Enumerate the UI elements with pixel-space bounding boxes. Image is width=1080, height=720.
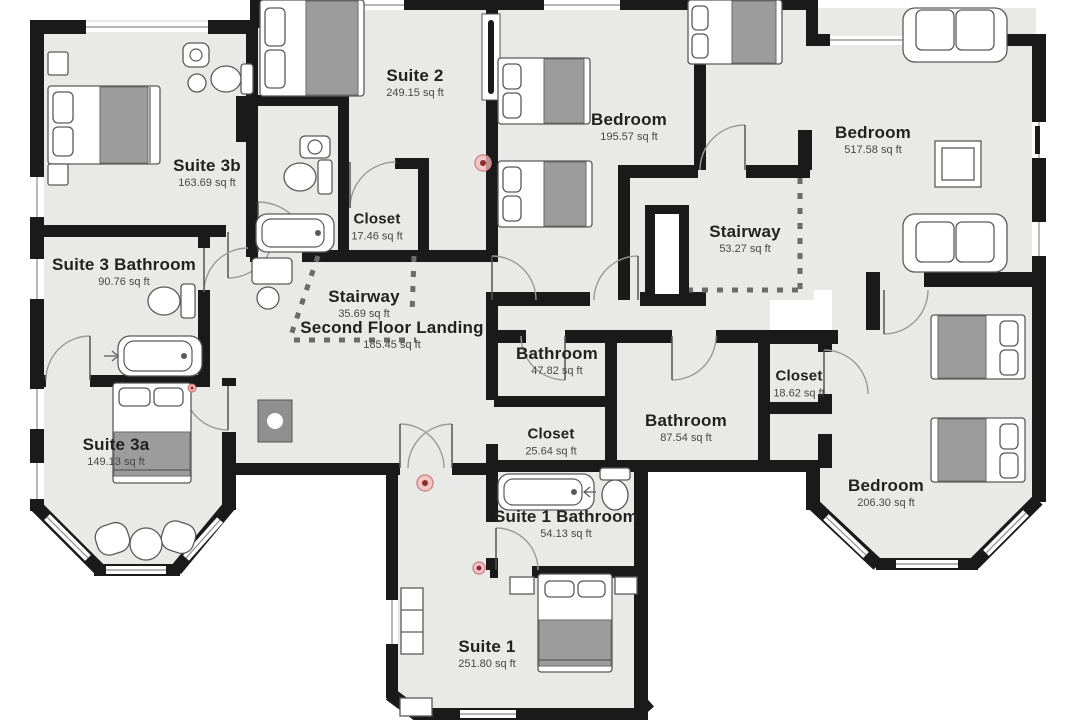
room-label-stairway-b: Stairway 53.27 sq ft [709, 221, 781, 257]
room-name: Suite 1 [458, 636, 516, 657]
room-name: Bedroom [835, 122, 911, 143]
room-area: 249.15 sq ft [386, 87, 444, 101]
room-area: 54.13 sq ft [494, 528, 638, 542]
stair-flight [645, 205, 689, 303]
bed-icon [931, 418, 1025, 482]
room-name: Suite 2 [386, 65, 444, 86]
room-name: Suite 1 Bathroom [494, 506, 638, 527]
room-name: Bedroom [848, 475, 924, 496]
room-name: Bathroom [516, 343, 598, 364]
smoke-detector-icon [417, 475, 433, 491]
bed-icon [498, 161, 592, 227]
room-label-closet-a: Closet 17.46 sq ft [351, 210, 402, 244]
table-icon [935, 141, 981, 187]
room-area: 18.62 sq ft [773, 387, 824, 401]
room-label-bedroom-c: Bedroom 206.30 sq ft [848, 475, 924, 511]
door-leaf-icon [236, 96, 248, 142]
room-name: Suite 3b [173, 155, 241, 176]
smoke-detector-icon [473, 562, 485, 574]
room-area: 149.13 sq ft [83, 456, 150, 470]
room-name: Closet [773, 367, 824, 386]
bed-icon [688, 0, 782, 64]
bench-icon [400, 698, 432, 716]
room-name: Suite 3 Bathroom [52, 254, 196, 275]
bed-icon [931, 315, 1025, 379]
room-label-suite-2: Suite 2 249.15 sq ft [386, 65, 444, 101]
room-label-suite-3-bathroom: Suite 3 Bathroom 90.76 sq ft [52, 254, 196, 290]
bed-icon [48, 86, 160, 164]
smoke-detector-icon [188, 384, 196, 392]
nightstand-icon [510, 577, 534, 594]
room-area: 195.57 sq ft [591, 131, 667, 145]
bathtub-icon [256, 214, 334, 252]
room-area: 25.64 sq ft [525, 445, 576, 459]
toilet-icon [284, 160, 332, 194]
utility-shaft [258, 400, 292, 442]
bed-icon [498, 58, 590, 124]
room-label-closet-b: Closet 18.62 sq ft [773, 367, 824, 401]
bathtub-icon [498, 474, 596, 510]
room-area: 163.69 sq ft [173, 177, 241, 191]
room-name: Suite 3a [83, 434, 150, 455]
room-name: Stairway [328, 286, 400, 307]
room-area: 517.58 sq ft [835, 144, 911, 158]
round-table-icon [130, 528, 162, 560]
sofa-icon [903, 8, 1007, 62]
room-label-closet-c: Closet 25.64 sq ft [525, 425, 576, 459]
room-area: 251.80 sq ft [458, 658, 516, 672]
smoke-detector-icon [475, 155, 491, 171]
window-icon [86, 22, 208, 32]
room-area: 53.27 sq ft [709, 243, 781, 257]
room-name: Closet [351, 210, 402, 229]
room-name: Bedroom [591, 109, 667, 130]
room-label-suite-1-bathroom: Suite 1 Bathroom 54.13 sq ft [494, 506, 638, 542]
room-label-suite-3a: Suite 3a 149.13 sq ft [83, 434, 150, 470]
toilet-icon [600, 468, 630, 510]
room-label-bathroom-b: Bathroom 87.54 sq ft [645, 410, 727, 446]
room-label-second-floor-landing: Second Floor Landing 185.45 sq ft [300, 317, 483, 353]
room-area: 47.82 sq ft [516, 365, 598, 379]
room-name: Stairway [709, 221, 781, 242]
room-name: Closet [525, 425, 576, 444]
room-label-bathroom-a: Bathroom 47.82 sq ft [516, 343, 598, 379]
room-label-bedroom-b: Bedroom 517.58 sq ft [835, 122, 911, 158]
floor-plan: Suite 3b 163.69 sq ft Suite 2 249.15 sq … [0, 0, 1080, 720]
sink-icon [300, 136, 330, 158]
bed-icon [538, 574, 612, 672]
sofa-icon [903, 214, 1007, 272]
pocket-door-icon [482, 14, 500, 100]
room-area: 87.54 sq ft [645, 432, 727, 446]
toilet-icon [211, 64, 253, 94]
room-area: 206.30 sq ft [848, 497, 924, 511]
room-label-bedroom-a: Bedroom 195.57 sq ft [591, 109, 667, 145]
room-name: Second Floor Landing [300, 317, 483, 338]
bed-icon [260, 0, 364, 96]
room-area: 90.76 sq ft [52, 276, 196, 290]
room-label-suite-3b: Suite 3b 163.69 sq ft [173, 155, 241, 191]
room-label-suite-1: Suite 1 251.80 sq ft [458, 636, 516, 672]
room-area: 185.45 sq ft [300, 339, 483, 353]
room-area: 17.46 sq ft [351, 230, 402, 244]
room-name: Bathroom [645, 410, 727, 431]
nightstand-icon [615, 577, 637, 594]
